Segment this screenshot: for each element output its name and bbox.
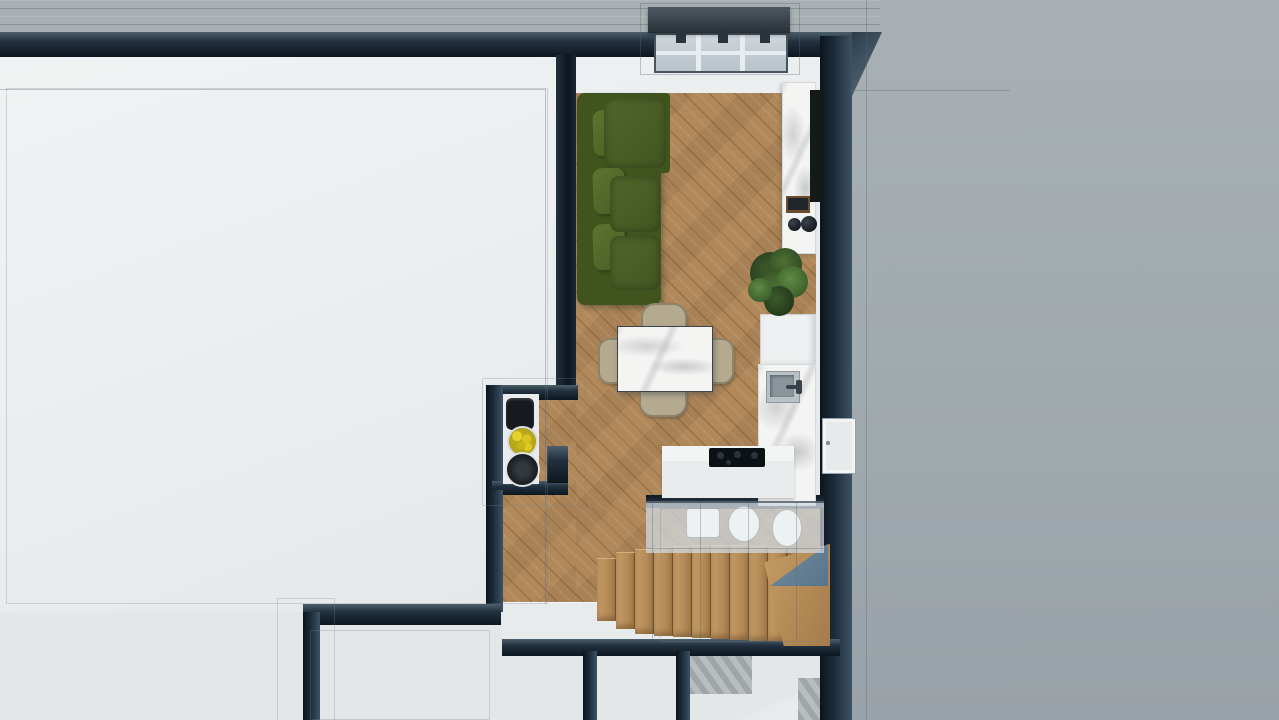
floorplan-render-viewport xyxy=(0,0,1279,720)
model-edge-1 xyxy=(6,88,548,604)
model-edge-3 xyxy=(0,89,546,90)
model-edge-15 xyxy=(660,508,822,642)
wireframe-overlay xyxy=(0,0,1279,720)
model-edge-7 xyxy=(310,630,490,720)
model-edge-5 xyxy=(482,378,586,506)
model-edge-2 xyxy=(545,90,546,604)
model-edge-9 xyxy=(850,90,1010,91)
model-edge-4 xyxy=(640,3,800,75)
model-edge-10 xyxy=(652,503,653,641)
model-edge-8 xyxy=(866,0,867,720)
